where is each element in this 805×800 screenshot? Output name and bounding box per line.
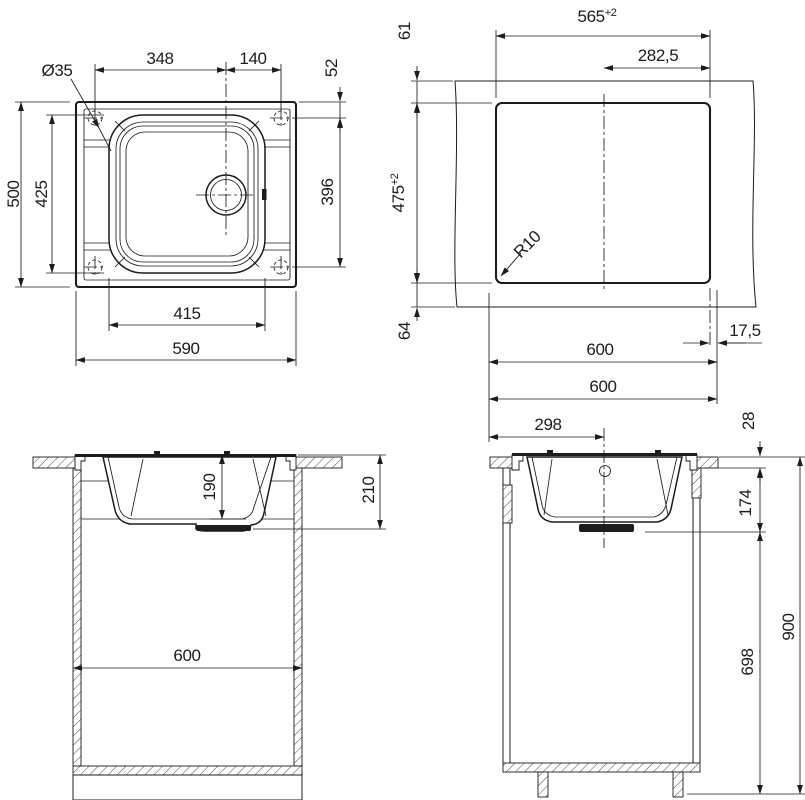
dim-label-174: 174 <box>736 489 755 516</box>
bowl-step-2 <box>120 126 254 262</box>
rim-grooves <box>84 140 290 250</box>
dim-label-348: 348 <box>146 49 173 68</box>
dim-label-590: 590 <box>172 339 199 358</box>
dim-label-396: 396 <box>318 178 337 205</box>
view-side-section: 600 298 28 174 698 900 <box>489 377 805 797</box>
dim-label-415: 415 <box>173 304 200 323</box>
rim-ridge-mark-4 <box>655 450 661 453</box>
cabinet-wall-left <box>73 468 81 766</box>
side-section-dimensions: 600 298 28 174 698 900 <box>489 377 805 794</box>
sink-side-section <box>512 428 697 548</box>
view-cutout: 565+2 282,5 61 475+2 64 R10 <box>389 7 762 442</box>
bowl-corner-ticks <box>115 121 259 267</box>
dim-label-52: 52 <box>322 59 341 77</box>
side-batten-left <box>503 485 512 523</box>
dim-label-425: 425 <box>32 180 51 207</box>
dim-label-28: 28 <box>739 412 758 430</box>
view-front-section: 190 210 600 <box>33 451 386 800</box>
overflow-slot <box>262 189 267 200</box>
cabinet-foot-right <box>673 772 683 797</box>
technical-drawing-page: 348 140 Ø35 52 396 500 4 <box>0 0 805 800</box>
dim-label-475: 475+2 <box>389 173 408 212</box>
bowl-step-1 <box>116 122 258 266</box>
bowl-top <box>109 115 267 273</box>
cabinet-bottom-side <box>503 763 700 772</box>
view-top-plan: 348 140 Ø35 52 396 500 4 <box>4 49 346 366</box>
worktop-section-right <box>293 457 342 468</box>
rim-ridge-mark-3 <box>547 450 553 453</box>
drain-boss-side <box>579 524 634 532</box>
side-batten-right <box>692 468 701 498</box>
drain-boss-front <box>196 525 251 531</box>
bowl-front-outer <box>103 457 276 531</box>
worktop-section-left <box>33 457 77 468</box>
rim-hook-side-left <box>512 455 523 470</box>
dim-label-282-5: 282,5 <box>638 46 679 65</box>
cabinet-plinth <box>73 775 302 800</box>
cutout-dimensions: 565+2 282,5 61 475+2 64 R10 <box>389 7 762 442</box>
rim-hook-side-right <box>686 455 697 470</box>
top-plan-dimensions: 348 140 Ø35 52 396 500 4 <box>4 49 346 366</box>
bowl-bottom <box>126 132 248 256</box>
dim-label-front-600: 600 <box>173 646 200 665</box>
cabinet-wall-right <box>294 468 302 766</box>
dim-label-565: 565+2 <box>578 7 617 26</box>
dim-label-side-600: 600 <box>589 377 616 396</box>
sink-technical-drawing: 348 140 Ø35 52 396 500 4 <box>0 0 805 800</box>
dim-label-500: 500 <box>4 180 23 207</box>
dim-label-r10: R10 <box>510 227 545 262</box>
dim-label-298: 298 <box>534 415 561 434</box>
dim-label-698: 698 <box>738 648 757 675</box>
drain-hole <box>196 62 256 237</box>
sink-rim-inner-edge <box>84 109 290 280</box>
cabinet-foot-left <box>538 772 548 797</box>
rim-ridge-mark-1 <box>154 451 160 454</box>
dim-label-900: 900 <box>779 613 798 640</box>
dim-label-61: 61 <box>395 22 414 40</box>
dim-label-64: 64 <box>395 322 414 340</box>
dim-label-190: 190 <box>200 473 219 500</box>
dim-label-cutout-600: 600 <box>586 340 613 359</box>
dim-label-hole-dia: Ø35 <box>42 61 73 80</box>
cabinet-bottom-panel <box>73 766 302 775</box>
rim-hook-left <box>75 455 85 470</box>
dim-label-17-5: 17,5 <box>729 321 761 340</box>
dim-label-140: 140 <box>239 49 266 68</box>
sink-top-outline <box>76 62 296 287</box>
dim-label-210: 210 <box>359 476 378 503</box>
rim-ridge-mark-2 <box>224 451 230 454</box>
rim-hook-right <box>286 455 296 470</box>
